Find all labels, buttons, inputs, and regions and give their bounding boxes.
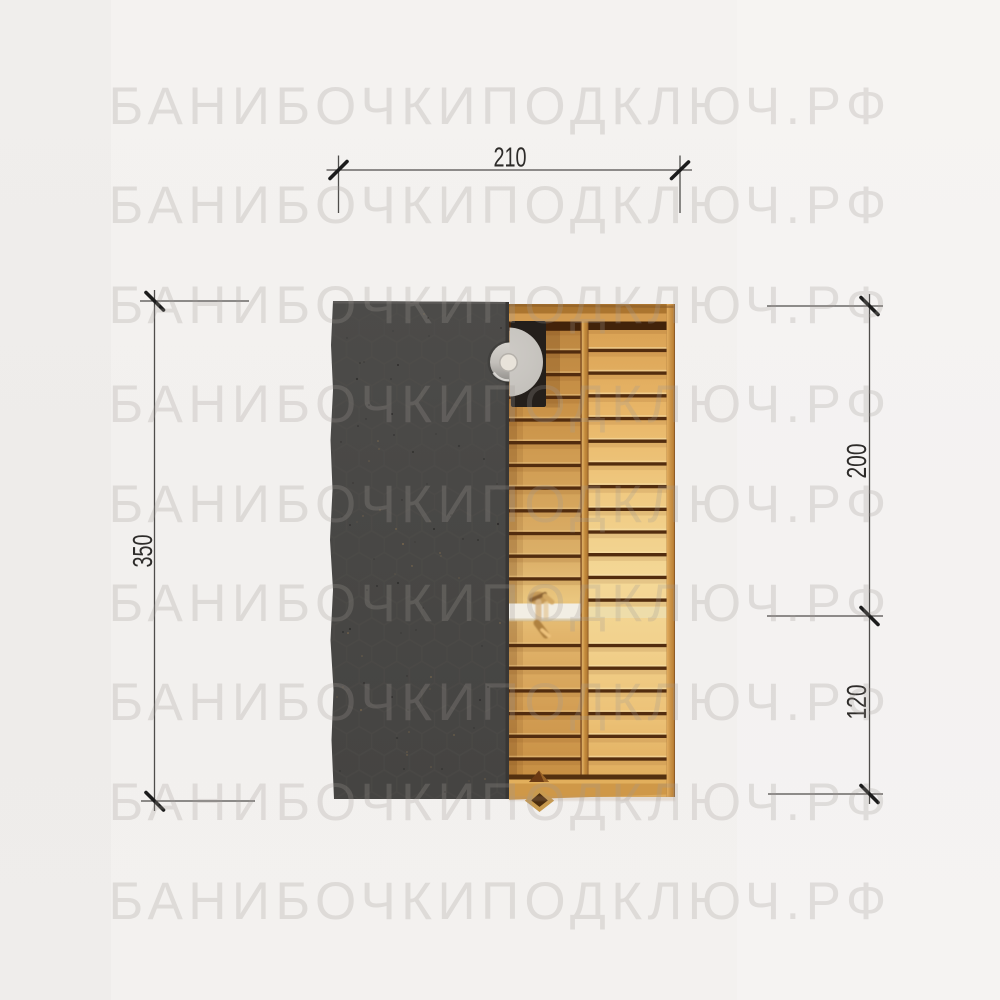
svg-text:350: 350	[127, 535, 158, 568]
svg-text:210: 210	[494, 142, 527, 173]
